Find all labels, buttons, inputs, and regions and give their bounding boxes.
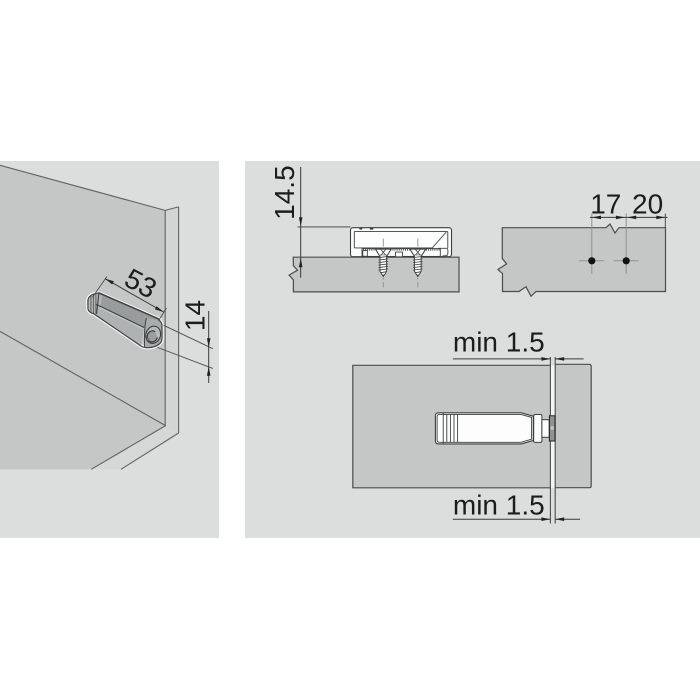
svg-text:14.5: 14.5: [269, 165, 300, 220]
svg-text:17: 17: [590, 188, 621, 219]
svg-text:20: 20: [632, 188, 663, 219]
svg-text:min 1.5: min 1.5: [453, 490, 545, 521]
svg-text:min 1.5: min 1.5: [453, 326, 545, 357]
svg-text:14: 14: [180, 300, 211, 331]
